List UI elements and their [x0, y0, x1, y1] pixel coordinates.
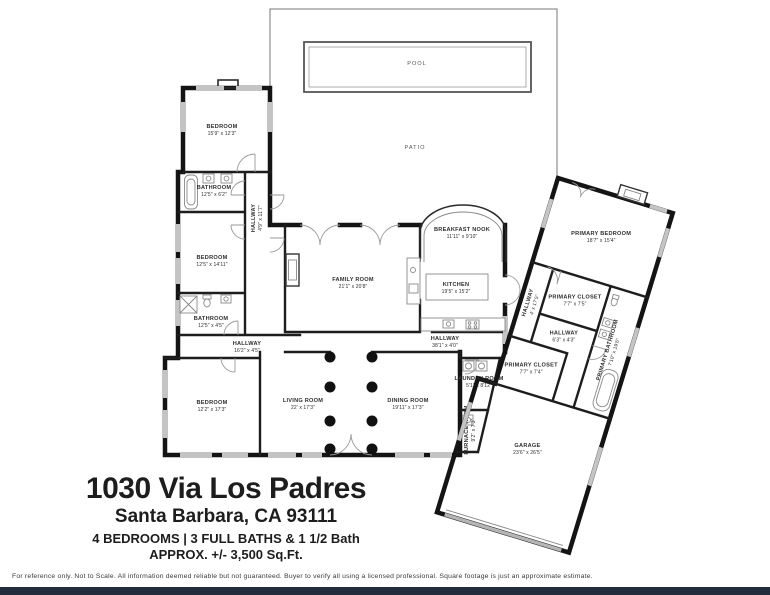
room-name: BATHROOM: [197, 185, 232, 191]
room-dims: 6'3" x 4'3": [552, 338, 575, 344]
room-dims: 7'7" x 7'5": [563, 301, 586, 307]
room-name: BEDROOM: [207, 124, 238, 130]
room-dims: 19'11" x 17'3": [392, 405, 423, 411]
room-labels: BEDROOM 15'9" x 12'3" BATHROOM 12'5" x 6…: [194, 124, 504, 455]
room-name: BEDROOM: [197, 255, 228, 261]
kitchen-sink-basin: [446, 322, 450, 326]
garage-door: [445, 515, 562, 551]
room-name: BREAKFAST NOOK: [434, 227, 490, 233]
room-dims: 12'5" x 6'2": [201, 192, 227, 198]
pool-shape: [304, 42, 531, 92]
room-label-dining-room: DINING ROOM 19'11" x 17'3": [387, 398, 428, 411]
kitchen-counter: [421, 318, 505, 331]
room-name: HALLWAY: [251, 204, 257, 233]
toilet-tank: [203, 295, 211, 299]
room-label-hallway2: HALLWAY 16'2" x 4'5": [233, 341, 262, 354]
outdoor-area: POOL PATIO: [270, 9, 557, 224]
room-name: HALLWAY: [431, 336, 460, 342]
dryer: [476, 361, 487, 371]
room-name: PRIMARY CLOSET: [505, 362, 559, 368]
room-label-primary-closet1: PRIMARY CLOSET 7'7" x 7'5": [548, 294, 602, 307]
room-name: PRIMARY CLOSET: [548, 294, 602, 300]
bottom-bar: [0, 587, 770, 595]
disclaimer-text: For reference only. Not to Scale. All in…: [12, 573, 593, 580]
room-name: HALLWAY: [550, 331, 579, 337]
patio-label: PATIO: [405, 145, 426, 151]
room-label-bedroom2: BEDROOM 12'5" x 14'11": [196, 255, 227, 268]
wing-fireplace: [617, 185, 647, 205]
room-label-primary-bedroom: PRIMARY BEDROOM 18'7" x 15'4": [571, 231, 631, 244]
room-dims: 15'9" x 12'3": [208, 131, 237, 137]
room-name: FAMILY ROOM: [332, 277, 374, 283]
prep-sink: [411, 268, 416, 273]
room-dims: 19'5" x 15'2": [442, 289, 471, 295]
room-name: DINING ROOM: [387, 398, 428, 404]
square-footage: APPROX. +/- 3,500 Sq.Ft.: [30, 547, 422, 563]
column: [325, 416, 336, 427]
room-label-bathroom1: BATHROOM 12'5" x 6'2": [197, 185, 232, 198]
property-city: Santa Barbara, CA 93111: [30, 506, 422, 528]
floor-plan-page: POOL PATIO: [0, 0, 770, 595]
room-dims: 12'5" x 4'5": [198, 323, 224, 329]
beds-baths-summary: 4 BEDROOMS | 3 FULL BATHS & 1 1/2 Bath: [30, 531, 422, 547]
room-label-bathroom2: BATHROOM 12'5" x 4'5": [194, 316, 229, 329]
room-label-living-room: LIVING ROOM 22' x 17'3": [283, 398, 323, 411]
column: [367, 382, 378, 393]
room-dims: 18'7" x 15'4": [587, 238, 616, 244]
room-label-hallway1: HALLWAY 4'9" x 11'7": [251, 204, 264, 233]
room-dims: 7'7" x 7'4": [520, 369, 543, 375]
room-label-family-room: FAMILY ROOM 21'1" x 20'8": [332, 277, 374, 290]
room-dims: 12'5" x 14'11": [196, 262, 227, 268]
column: [367, 444, 378, 455]
room-dims: 4'9" x 11'7": [258, 205, 264, 231]
garage-door-track: [446, 510, 563, 546]
room-label-breakfast-nook: BREAKFAST NOOK 11'11" x 9'10": [434, 227, 490, 240]
property-address: 1030 Via Los Padres: [30, 472, 422, 506]
sink-basin: [224, 176, 229, 181]
room-name: PRIMARY BEDROOM: [571, 231, 631, 237]
column: [325, 382, 336, 393]
room-label-hallway3: HALLWAY 38'1" x 4'0": [431, 336, 460, 349]
room-dims: 12'2" x 17'3": [198, 407, 227, 413]
room-label-kitchen: KITCHEN 19'5" x 15'2": [442, 282, 471, 295]
room-dims: 22' x 17'3": [291, 405, 315, 411]
sink-basin: [224, 297, 228, 301]
kitchen-counter-left: [407, 258, 420, 304]
bathtub-inner: [187, 179, 195, 205]
room-name: KITCHEN: [443, 282, 470, 288]
room-label-primary-closet2: PRIMARY CLOSET 7'7" x 7'4": [505, 362, 559, 375]
room-dims: 23'6" x 26'5": [513, 450, 542, 456]
title-block: 1030 Via Los Padres Santa Barbara, CA 93…: [30, 472, 422, 563]
room-label-bedroom1: BEDROOM 15'9" x 12'3": [207, 124, 238, 137]
fireplace: [286, 254, 299, 286]
column: [325, 352, 336, 363]
column: [325, 444, 336, 455]
pool-label: POOL: [407, 61, 427, 67]
room-dims: 38'1" x 4'0": [432, 343, 458, 349]
columns: [325, 352, 378, 455]
room-dims: 21'1" x 20'8": [339, 284, 368, 290]
room-dims: 11'11" x 9'10": [447, 234, 478, 240]
room-dims: 16'2" x 4'5": [234, 348, 260, 354]
toilet: [204, 299, 210, 307]
room-label-bedroom3: BEDROOM 12'2" x 17'3": [197, 400, 228, 413]
room-name: HALLWAY: [233, 341, 262, 347]
washer: [463, 361, 474, 371]
room-label-garage: GARAGE 23'6" x 26'5": [513, 443, 542, 456]
column: [367, 352, 378, 363]
room-name: BEDROOM: [197, 400, 228, 406]
room-name: BATHROOM: [194, 316, 229, 322]
room-dims: 9'2" x 7'3": [471, 418, 477, 441]
wing-door-arcs: [524, 182, 649, 363]
cooktop: [409, 284, 418, 293]
room-name: GARAGE: [514, 443, 540, 449]
sink-basin: [206, 176, 211, 181]
room-name: LIVING ROOM: [283, 398, 323, 404]
room-dims: 5'1" x 8'12": [466, 383, 492, 389]
column: [367, 416, 378, 427]
room-label-hallway5: HALLWAY 6'3" x 4'3": [550, 331, 579, 344]
